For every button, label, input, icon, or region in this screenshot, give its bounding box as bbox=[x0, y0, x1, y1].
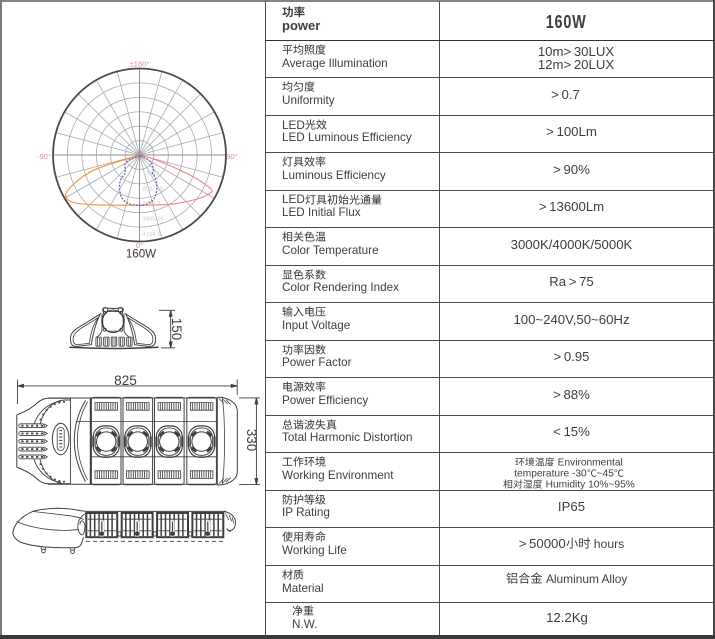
svg-text:±180°: ±180° bbox=[130, 60, 150, 69]
svg-text:2097.15: 2097.15 bbox=[143, 186, 164, 192]
svg-text:4194.3: 4194.3 bbox=[143, 232, 161, 238]
svg-text:90°: 90° bbox=[226, 152, 237, 161]
svg-text:160W: 160W bbox=[126, 247, 156, 260]
svg-text:825: 825 bbox=[114, 373, 137, 388]
svg-text:-90°: -90° bbox=[37, 152, 51, 161]
svg-text:1398.1: 1398.1 bbox=[143, 171, 161, 177]
svg-text:150: 150 bbox=[169, 318, 184, 340]
svg-text:330: 330 bbox=[244, 429, 259, 451]
svg-text:2796.2: 2796.2 bbox=[143, 201, 161, 207]
svg-text:3495.25: 3495.25 bbox=[143, 216, 164, 222]
